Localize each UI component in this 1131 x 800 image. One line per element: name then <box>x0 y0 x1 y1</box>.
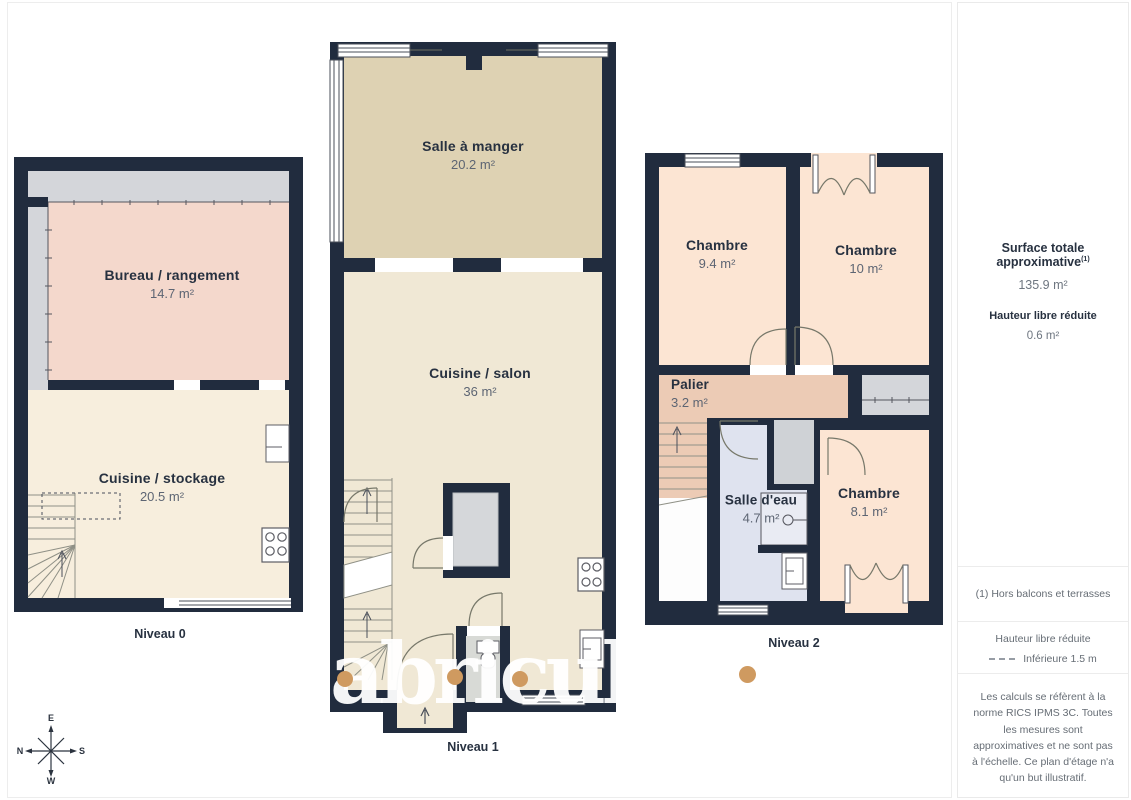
level-label-niveau-1: Niveau 1 <box>447 740 498 754</box>
room-label-chambre-94: Chambre 9.4 m² <box>686 237 748 271</box>
divider <box>958 566 1128 567</box>
passage-opening <box>375 258 453 272</box>
room-label-salle-a-manger: Salle à manger 20.2 m² <box>422 138 524 172</box>
surface-value: 135.9 m² <box>958 278 1128 292</box>
info-sidebar: Surface totale approximative(1) 135.9 m²… <box>957 2 1129 798</box>
room-name: Chambre <box>838 485 900 501</box>
legend-title: Hauteur libre réduite <box>958 633 1128 645</box>
floorplan-page: Bureau / rangement 14.7 m² Cuisine / sto… <box>0 0 1131 800</box>
watermark-dot <box>512 671 528 687</box>
watermark-dot <box>447 669 463 685</box>
disclaimer-text: Les calculs se réfèrent à la norme RICS … <box>958 689 1128 787</box>
room-area: 9.4 m² <box>686 256 748 271</box>
window-icon <box>330 60 343 242</box>
compass-e: E <box>48 713 54 723</box>
room-area: 20.5 m² <box>99 489 226 504</box>
room-name: Salle d'eau <box>725 493 797 508</box>
passage-opening <box>501 258 583 272</box>
footnote-text: (1) Hors balcons et terrasses <box>958 588 1128 600</box>
compass-s: S <box>79 746 85 756</box>
stair-void <box>659 498 707 601</box>
window-icon <box>164 598 291 608</box>
room-name: Salle à manger <box>422 138 524 154</box>
floor-plan-niveau-0: Bureau / rangement 14.7 m² Cuisine / sto… <box>14 157 303 612</box>
room-label-salle-eau: Salle d'eau 4.7 m² <box>725 493 797 526</box>
window-icon <box>685 154 740 167</box>
level-label-niveau-2: Niveau 2 <box>768 636 819 650</box>
room-label-bureau: Bureau / rangement 14.7 m² <box>104 267 239 301</box>
surface-summary: Surface totale approximative(1) 135.9 m²… <box>958 241 1128 342</box>
room-name: Bureau / rangement <box>104 267 239 283</box>
room-area: 20.2 m² <box>422 157 524 172</box>
room-name: Cuisine / stockage <box>99 470 226 486</box>
room-label-chambre-81: Chambre 8.1 m² <box>838 485 900 519</box>
shower-duct <box>767 420 814 490</box>
legend-block: Hauteur libre réduite Inférieure 1.5 m <box>958 633 1128 665</box>
corridor-gray-band <box>28 171 289 202</box>
divider <box>958 673 1128 674</box>
room-label-palier: Palier 3.2 m² <box>671 377 709 410</box>
compass-n: N <box>17 746 24 756</box>
door-opening <box>174 380 200 390</box>
footnote-ref: (1) <box>1081 256 1090 263</box>
window-icon <box>718 605 768 615</box>
stairs-area <box>659 418 707 498</box>
floor-plan-niveau-2: Chambre 9.4 m² Chambre 10 m² Palier 3.2 … <box>645 153 943 625</box>
floor-plan-niveau-1: Salle à manger 20.2 m² Cuisine / salon 3… <box>330 42 616 712</box>
watermark-dot <box>337 671 353 687</box>
room-name: Chambre <box>835 242 897 258</box>
room-area: 10 m² <box>835 261 897 276</box>
room-name: Cuisine / salon <box>429 365 531 381</box>
room-label-cuisine-salon: Cuisine / salon 36 m² <box>429 365 531 399</box>
compass-icon: E W N S <box>16 713 86 785</box>
room-area: 4.7 m² <box>725 511 797 526</box>
watermark: abricult <box>330 632 662 716</box>
reduced-height-title: Hauteur libre réduite <box>958 310 1128 322</box>
room-name: Chambre <box>686 237 748 253</box>
room-area: 14.7 m² <box>104 286 239 301</box>
room-area: 36 m² <box>429 384 531 399</box>
room-area: 8.1 m² <box>838 504 900 519</box>
compass-w: W <box>47 776 56 785</box>
footnote-block: (1) Hors balcons et terrasses <box>958 588 1128 600</box>
reduced-height-value: 0.6 m² <box>958 330 1128 342</box>
room-area: 3.2 m² <box>671 395 709 410</box>
room-label-chambre-10: Chambre 10 m² <box>835 242 897 276</box>
closet-gray <box>862 375 929 415</box>
door-opening <box>259 380 285 390</box>
room-name: Palier <box>671 377 709 392</box>
divider <box>958 621 1128 622</box>
surface-title: Surface totale approximative(1) <box>958 241 1128 269</box>
dashed-line-icon <box>989 658 1015 660</box>
brand-dot <box>739 666 756 683</box>
legend-item: Inférieure 1.5 m <box>958 653 1128 665</box>
disclaimer-block: Les calculs se réfèrent à la norme RICS … <box>958 689 1128 800</box>
room-label-cuisine-stockage: Cuisine / stockage 20.5 m² <box>99 470 226 504</box>
level-label-niveau-0: Niveau 0 <box>134 627 185 641</box>
